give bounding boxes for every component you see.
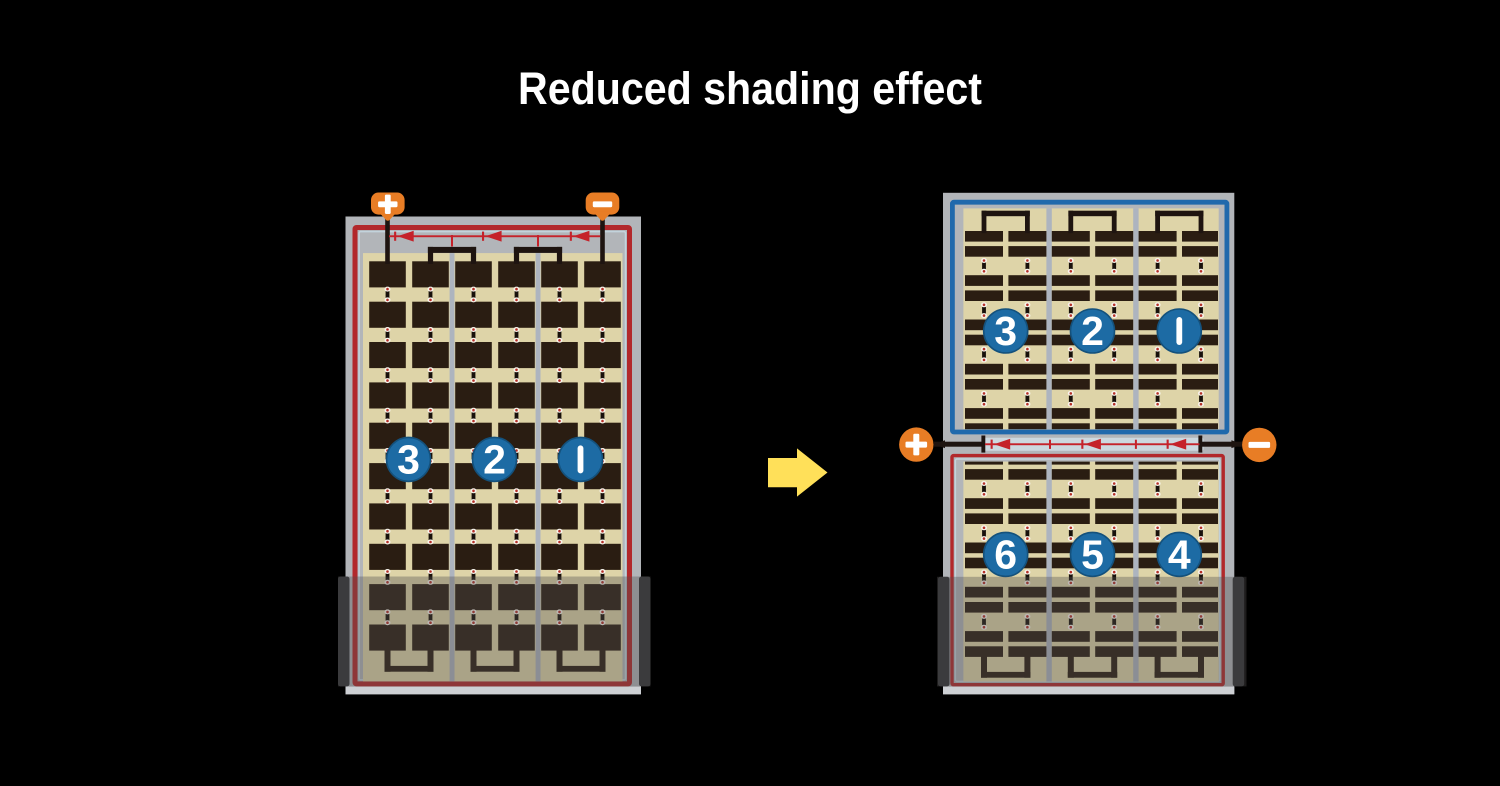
svg-text:3: 3: [397, 436, 420, 482]
svg-text:2: 2: [483, 436, 506, 482]
svg-text:6: 6: [994, 531, 1017, 577]
svg-text:4: 4: [1168, 531, 1191, 577]
svg-text:3: 3: [994, 308, 1017, 354]
svg-text:2: 2: [1081, 308, 1104, 354]
svg-text:5: 5: [1081, 531, 1104, 577]
svg-text:Reduced shading effect: Reduced shading effect: [518, 63, 982, 114]
